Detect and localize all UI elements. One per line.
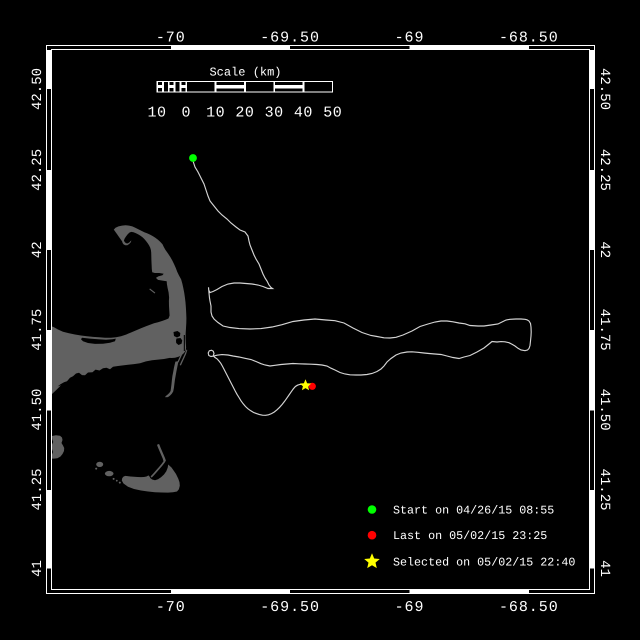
svg-text:20: 20: [235, 105, 254, 122]
svg-text:30: 30: [265, 105, 284, 122]
svg-text:-69.50: -69.50: [260, 30, 320, 47]
svg-text:-69: -69: [395, 599, 425, 616]
svg-text:Start on 04/26/15 08:55: Start on 04/26/15 08:55: [393, 504, 554, 518]
svg-text:41.25: 41.25: [596, 468, 612, 510]
svg-text:10: 10: [147, 105, 166, 122]
svg-text:-69.50: -69.50: [260, 599, 320, 616]
svg-text:Last on 05/02/15 23:25: Last on 05/02/15 23:25: [393, 529, 547, 543]
svg-text:10: 10: [206, 105, 225, 122]
svg-text:41.75: 41.75: [596, 309, 612, 351]
svg-text:42.50: 42.50: [596, 68, 612, 110]
svg-text:40: 40: [294, 105, 313, 122]
svg-text:42: 42: [596, 241, 612, 258]
svg-text:50: 50: [323, 105, 342, 122]
svg-text:0: 0: [182, 105, 192, 122]
svg-text:41.25: 41.25: [30, 468, 46, 510]
svg-text:41.50: 41.50: [30, 389, 46, 431]
svg-text:42.50: 42.50: [30, 68, 46, 110]
svg-text:-70: -70: [156, 30, 186, 47]
svg-text:-68.50: -68.50: [499, 30, 559, 47]
svg-text:-69: -69: [395, 30, 425, 47]
svg-text:-68.50: -68.50: [499, 599, 559, 616]
svg-text:41.75: 41.75: [30, 309, 46, 351]
svg-text:41: 41: [596, 560, 612, 577]
svg-text:41.50: 41.50: [596, 389, 612, 431]
svg-text:-70: -70: [156, 599, 186, 616]
svg-text:Selected on 05/02/15 22:40: Selected on 05/02/15 22:40: [393, 555, 575, 569]
svg-text:42.25: 42.25: [30, 149, 46, 191]
svg-text:42: 42: [30, 241, 46, 258]
svg-text:41: 41: [30, 560, 46, 577]
svg-text:Scale (km): Scale (km): [209, 66, 281, 80]
svg-text:42.25: 42.25: [596, 149, 612, 191]
